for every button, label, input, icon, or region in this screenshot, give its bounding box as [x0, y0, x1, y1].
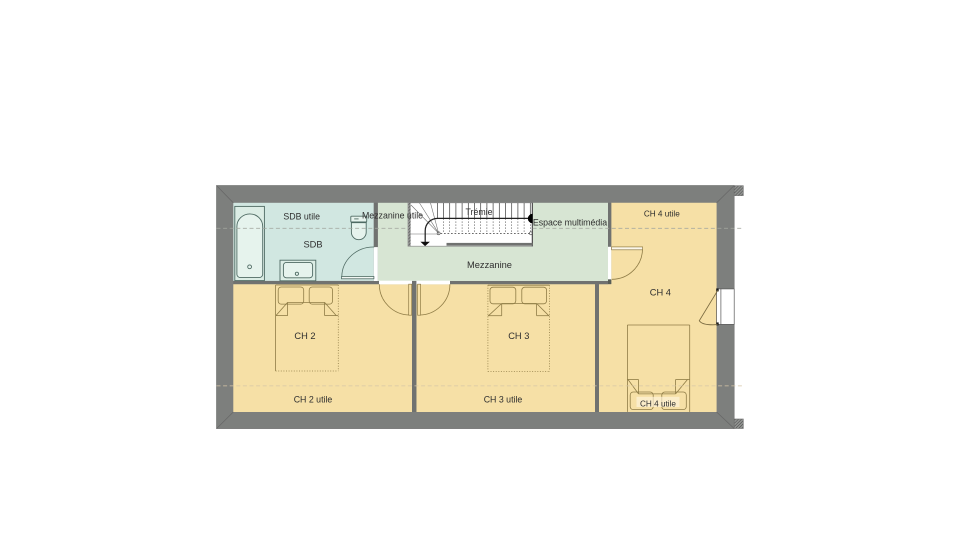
svg-text:Mezzanine: Mezzanine	[467, 260, 512, 270]
svg-text:CH 4: CH 4	[650, 287, 671, 297]
svg-text:CH 4 utile: CH 4 utile	[640, 399, 676, 408]
svg-text:CH 3 utile: CH 3 utile	[484, 394, 523, 404]
svg-text:CH 3: CH 3	[508, 331, 529, 341]
svg-text:CH 2 utile: CH 2 utile	[294, 394, 333, 404]
svg-text:CH 2: CH 2	[294, 331, 315, 341]
svg-text:Espace multimédia: Espace multimédia	[533, 217, 607, 227]
svg-text:Mezzanine utile: Mezzanine utile	[362, 210, 423, 220]
svg-text:CH 4 utile: CH 4 utile	[644, 210, 680, 219]
svg-text:SDB: SDB	[303, 240, 322, 250]
svg-text:SDB utile: SDB utile	[283, 211, 320, 221]
svg-text:Trémie: Trémie	[465, 207, 492, 217]
